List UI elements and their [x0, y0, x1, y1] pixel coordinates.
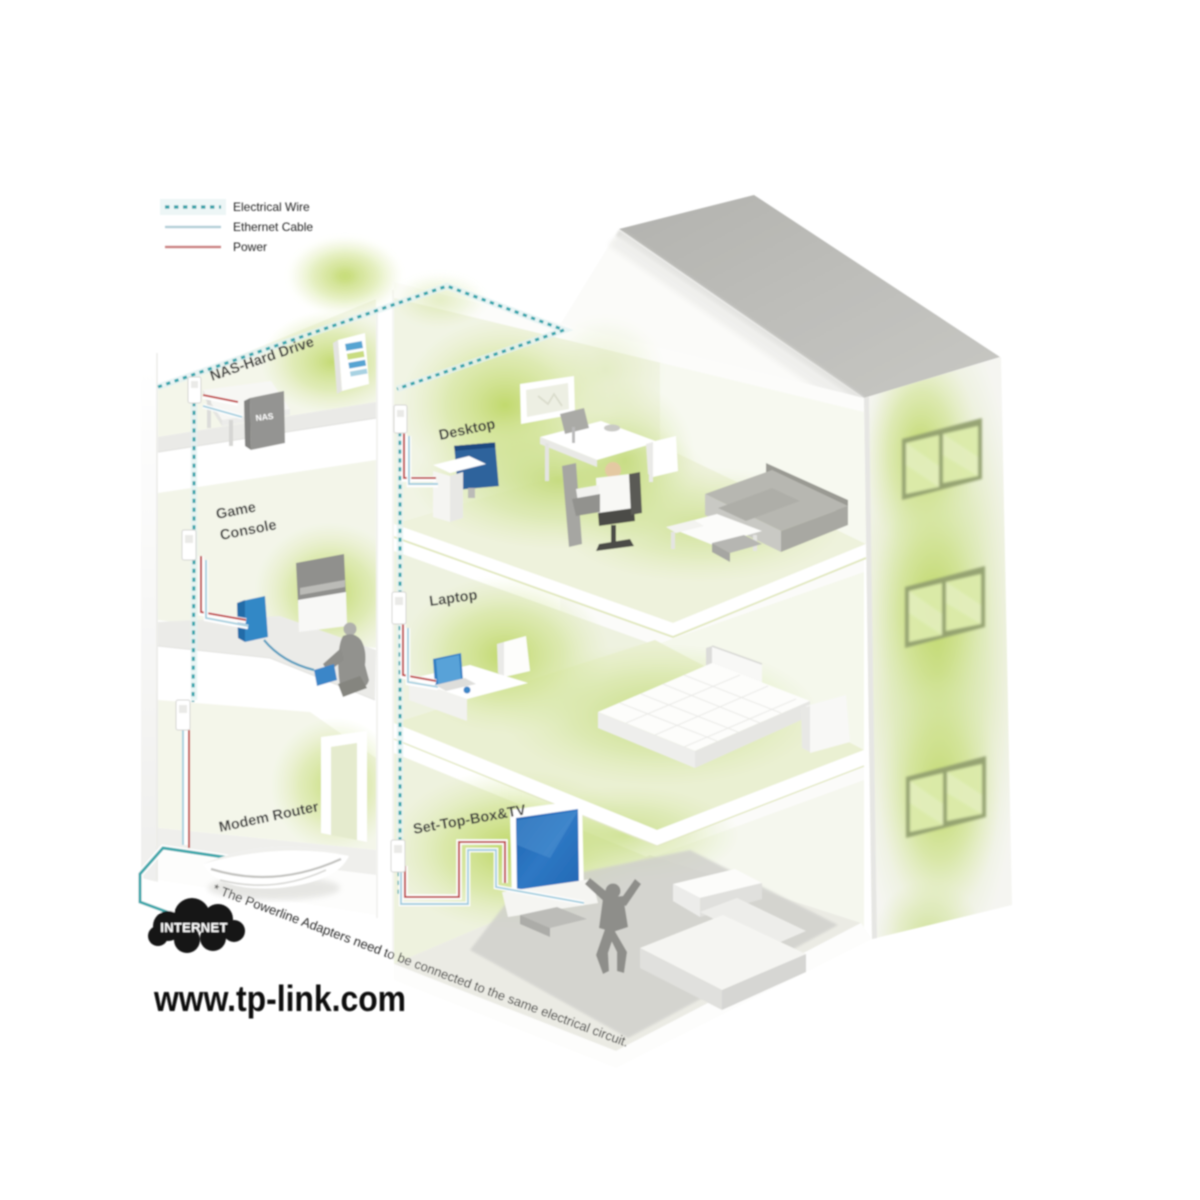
svg-text:www.tp-link.com: www.tp-link.com: [153, 978, 406, 1019]
svg-text:Electrical Wire: Electrical Wire: [233, 200, 310, 214]
svg-text:Power: Power: [233, 240, 267, 254]
svg-text:Ethernet Cable: Ethernet Cable: [233, 220, 313, 234]
svg-text:INTERNET: INTERNET: [160, 920, 227, 935]
